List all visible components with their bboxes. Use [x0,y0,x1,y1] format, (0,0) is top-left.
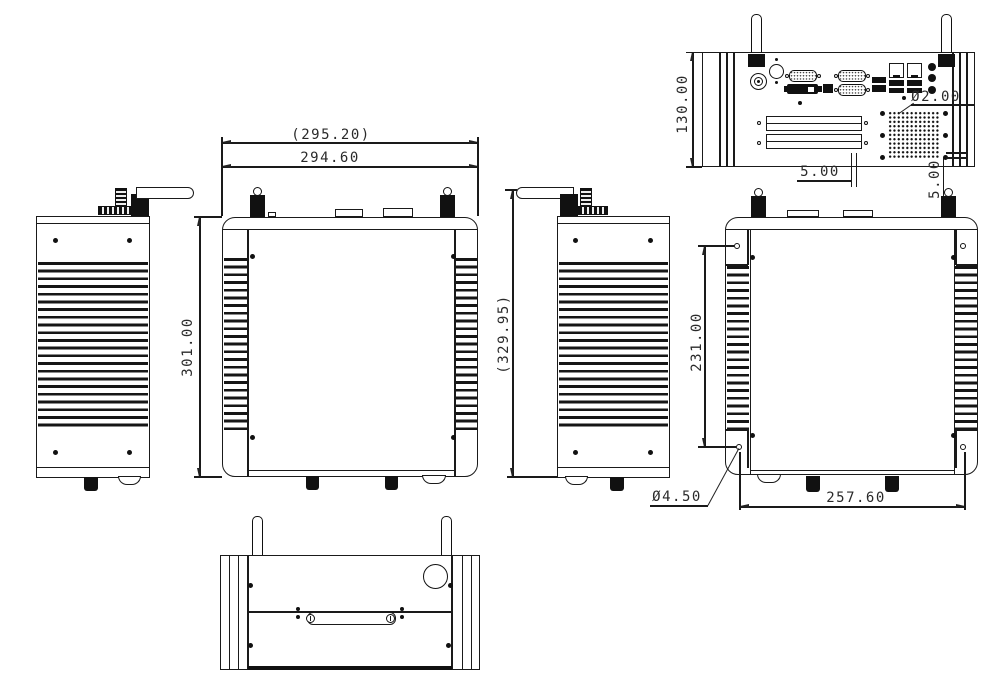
rubber-foot [610,477,624,491]
dimension-line [512,190,513,477]
serial-port-1 [838,70,866,82]
side-fin-line [471,556,472,669]
lan-port-tab [911,75,918,78]
panel-divider [952,53,953,166]
mount-bracket [726,429,748,430]
antenna-mount-base [941,196,956,217]
dimension-line [740,506,965,507]
dim-top-width: 294.60 [300,151,360,165]
arrowhead [469,140,478,144]
leader-line [707,448,739,506]
antenna [441,516,453,556]
dimension-line [199,217,200,477]
screw [880,111,885,116]
antenna-folded [136,187,194,199]
top-connector-row [98,206,134,215]
dimensional-drawing: 301.00 (295.20) 294.60 (329.95) [0,0,1000,700]
extension-line [946,152,968,153]
screw [400,615,404,619]
heatsink-fins [456,258,477,434]
edge-connector [383,208,413,217]
screw [648,450,653,455]
leader-underline [650,505,708,506]
side-fin-line [959,53,960,166]
dim-top-width-ref: (295.20) [291,128,370,142]
extension-line [477,137,478,216]
usb-port [889,88,904,94]
usb-port [907,80,922,86]
antenna-hinge [560,194,578,216]
screw [446,643,451,648]
screw [451,435,456,440]
extension-line [946,157,968,158]
dome-foot [422,475,446,484]
arrowhead [956,504,965,508]
mount-bracket [726,264,748,265]
screw [943,133,948,138]
dim-mount-pitch-v: 231.00 [690,312,704,372]
rubber-foot [885,476,899,492]
arrowhead [197,468,201,477]
screw [573,450,578,455]
fin-band-edge [750,229,751,475]
dim-vent-pitch-h: 5.00 [800,165,840,179]
screw [248,643,253,648]
side-fin-line [966,53,967,166]
arrowhead [510,190,514,199]
heatsink-fins [38,262,148,429]
arrowhead [690,52,694,61]
antenna-sma-connector [580,188,592,207]
rubber-foot [306,476,319,490]
extension-line [686,166,702,167]
vga-port [789,70,817,82]
antenna-mount-base [751,196,766,217]
power-led [775,58,778,61]
antenna [252,516,264,556]
screw [880,155,885,160]
panel-line [223,229,477,230]
screw [750,433,755,438]
screw [798,101,802,105]
panel-line [726,229,977,230]
panel-line [750,470,955,471]
screw [248,583,253,588]
screw [53,450,58,455]
dc-power-jack-pin [757,80,761,84]
antenna-mount-base [250,195,265,217]
extension-line [507,476,557,477]
arrowhead [702,438,706,447]
dome-foot [118,476,141,485]
antenna-base [938,54,955,67]
extension-line [739,452,740,510]
edge-connector [787,210,819,217]
panel-line [558,467,669,468]
screw [943,111,948,116]
screw [448,583,453,588]
slot-line [767,123,861,124]
screw [250,435,255,440]
handle-screw-slit [390,616,391,621]
mount-bracket [956,264,977,265]
handle-slot [307,612,396,625]
usb-port [872,77,886,83]
mount-bracket [747,429,748,468]
side-fin-line [719,53,720,166]
screw [951,433,956,438]
screw [648,238,653,243]
rubber-foot [806,476,820,492]
audio-jack [928,63,936,71]
heatsink-fins [224,258,247,434]
side-fin-line [462,556,463,669]
top-connector-row [578,206,608,215]
port-screw [834,88,838,92]
lan-port-tab [893,75,900,78]
dim-mount-pitch-h: 257.60 [826,491,886,505]
screw [127,450,132,455]
arrowhead [222,140,231,144]
panel-line [36,223,150,224]
vent-hole-grid [888,111,940,159]
screw [750,255,755,260]
leader-underline [797,180,851,181]
dome-foot [565,476,588,485]
arrowhead [702,246,706,255]
screw [951,255,956,260]
bottom-view-body [725,217,978,475]
extension-line [851,153,852,187]
dim-vent-hole-dia: Ø2.00 [911,90,961,104]
screw [296,615,300,619]
panel-line [557,223,670,224]
screw [400,607,404,611]
fin-band-edge [247,229,248,476]
edge-connector [843,210,873,217]
dvi-port-notch [808,87,814,92]
handle-screw-slit [310,616,311,621]
panel-line [37,467,149,468]
mount-bracket [747,229,748,265]
rubber-foot [385,476,398,490]
extension-line [964,452,965,510]
screw [902,96,906,100]
side-fin-line [726,53,727,166]
extension-line [856,153,857,187]
arrowhead [690,158,694,167]
side-fin-line [238,556,239,669]
arrowhead [740,504,749,508]
power-button [423,564,448,589]
arrowhead [197,217,201,226]
usb-port [872,85,886,92]
port-screw [785,74,789,78]
dvi-port-ear [818,86,822,92]
heatsink-fins [955,266,977,432]
port-screw [834,74,838,78]
dimension-line [692,52,693,167]
antenna-mount-base [440,195,455,217]
antenna [751,14,763,56]
screw [127,238,132,243]
edge-connector [335,209,363,217]
extension-line [221,137,222,216]
antenna [941,14,953,56]
panel-line [248,470,454,471]
mount-bracket [955,429,956,468]
usb-port [889,80,904,86]
dim-rear-height: 130.00 [676,74,690,134]
displayport [823,84,833,93]
extension-line [686,52,702,53]
panel-divider [733,53,734,166]
dimension-line [222,166,478,167]
screw [573,238,578,243]
mount-bracket [956,429,977,430]
screw [296,607,300,611]
screw [451,254,456,259]
dim-mount-hole-dia: Ø4.50 [652,490,702,504]
arrowhead [222,164,231,168]
mount-bracket [955,229,956,265]
antenna-sma-connector [115,188,127,207]
screw [880,133,885,138]
rubber-foot [84,477,98,491]
dome-foot [757,474,781,483]
dim-side-height-ref: (329.95) [497,294,511,373]
heatsink-fins [727,266,749,432]
serial-port-2 [838,84,866,96]
slot-line [767,141,861,142]
screw [250,254,255,259]
arrowhead [469,164,478,168]
base-plate-edge [248,666,452,670]
antenna-base [748,54,765,67]
top-view-body [222,217,478,477]
power-button [769,64,784,79]
heatsink-fins [559,262,668,429]
screw [53,238,58,243]
dim-top-depth: 301.00 [181,317,195,377]
side-fin-line [229,556,230,669]
dim-vent-pitch-v: 5.00 [928,159,942,199]
power-led [775,81,778,84]
arrowhead [510,468,514,477]
